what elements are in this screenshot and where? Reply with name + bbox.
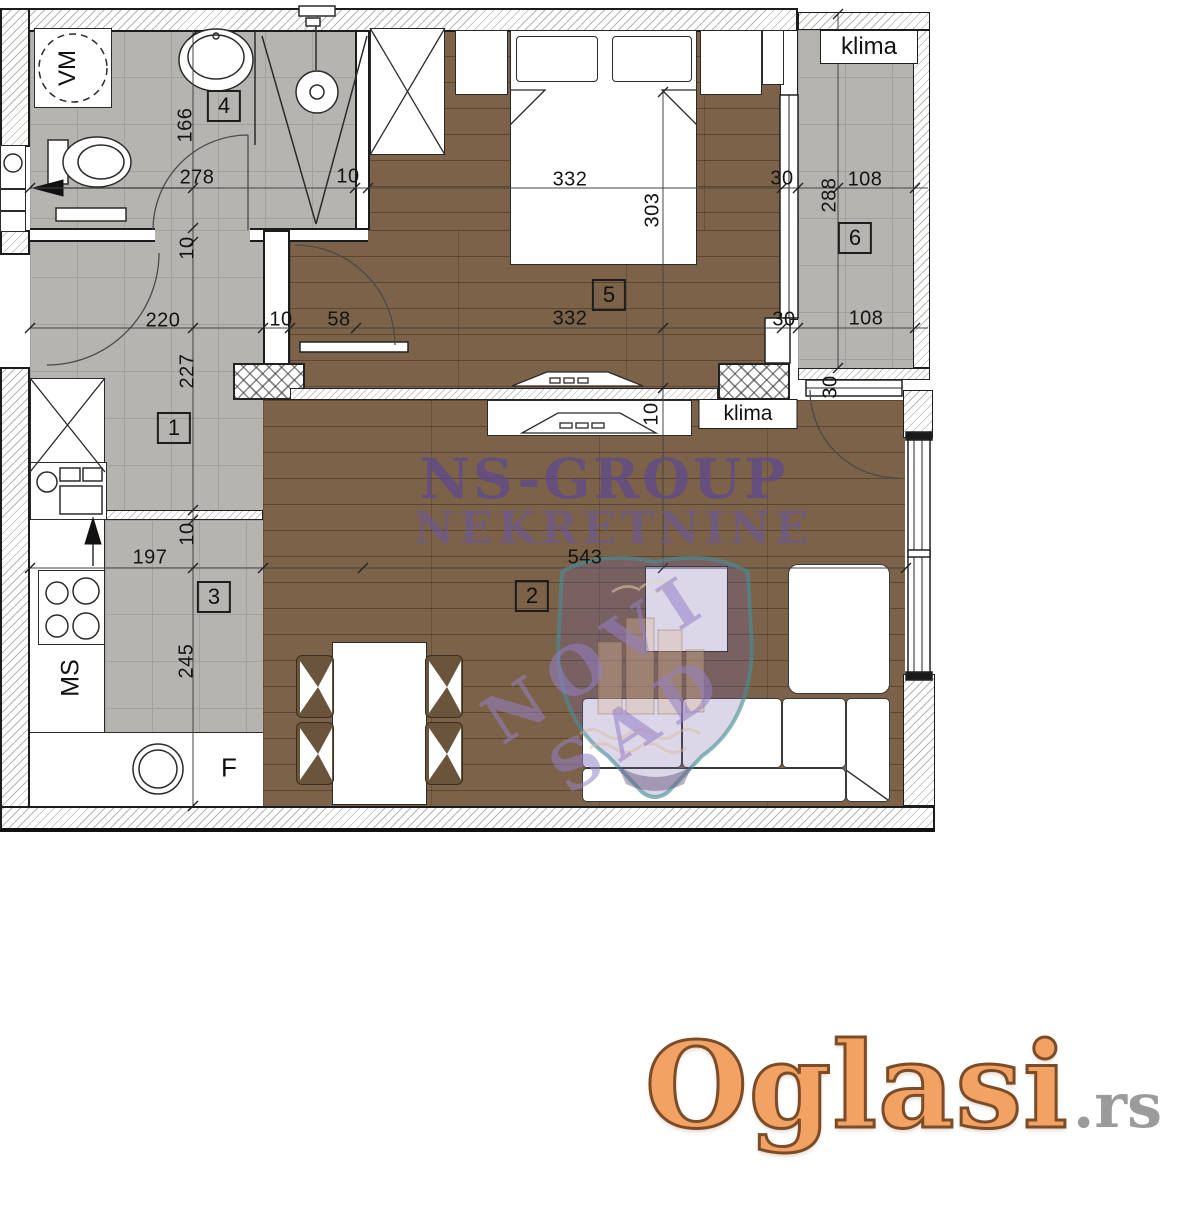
dimension-label: 30 [820,375,843,398]
dimension-label: 227 [177,354,200,389]
dimension-label: 166 [175,108,198,143]
fixture-label: klima [699,399,798,429]
dimension-label: 543 [568,547,603,570]
oglasi-logo: Oglasi.rs [645,1016,1162,1155]
crest-watermark [558,558,752,797]
dimension-label: 10 [269,309,292,332]
dimension-label: 10 [177,236,200,259]
room-number-label: 2 [515,580,549,612]
oglasi-logo-text: Oglasi [645,1016,1069,1155]
dimension-label: 220 [146,310,181,333]
room-number-label: 3 [197,581,231,613]
dimension-label: 278 [180,167,215,190]
dimension-label: 288 [819,178,842,213]
dimension-label: 58 [327,309,350,332]
dimension-label: 30 [770,168,793,191]
dimension-label: 10 [336,166,359,189]
plan-linework [0,0,940,845]
dimension-label: 245 [176,644,199,679]
fixture-label: VM [54,50,82,86]
room-number-label: 4 [207,90,241,122]
floorplan-canvas: 1662781033230330288108102201058332301082… [0,0,1196,1228]
fixture-label: klima [820,30,918,64]
room-number-label: 1 [157,412,191,444]
dimension-label: 10 [177,522,200,545]
room-number-label: 5 [592,279,626,311]
dimension-label: 30 [772,309,795,332]
dimension-label: 108 [849,308,884,331]
dimension-label: 10 [641,402,664,425]
dimension-label: 108 [848,169,883,192]
room-number-label: 6 [838,222,872,254]
oglasi-logo-tld: .rs [1073,1069,1162,1142]
dimension-label: 332 [553,308,588,331]
fixture-label: MS [57,659,86,697]
dimension-label: 303 [642,193,665,228]
dimension-label: 197 [133,547,168,570]
fixture-label: F [221,753,237,784]
dimension-label: 332 [553,169,588,192]
